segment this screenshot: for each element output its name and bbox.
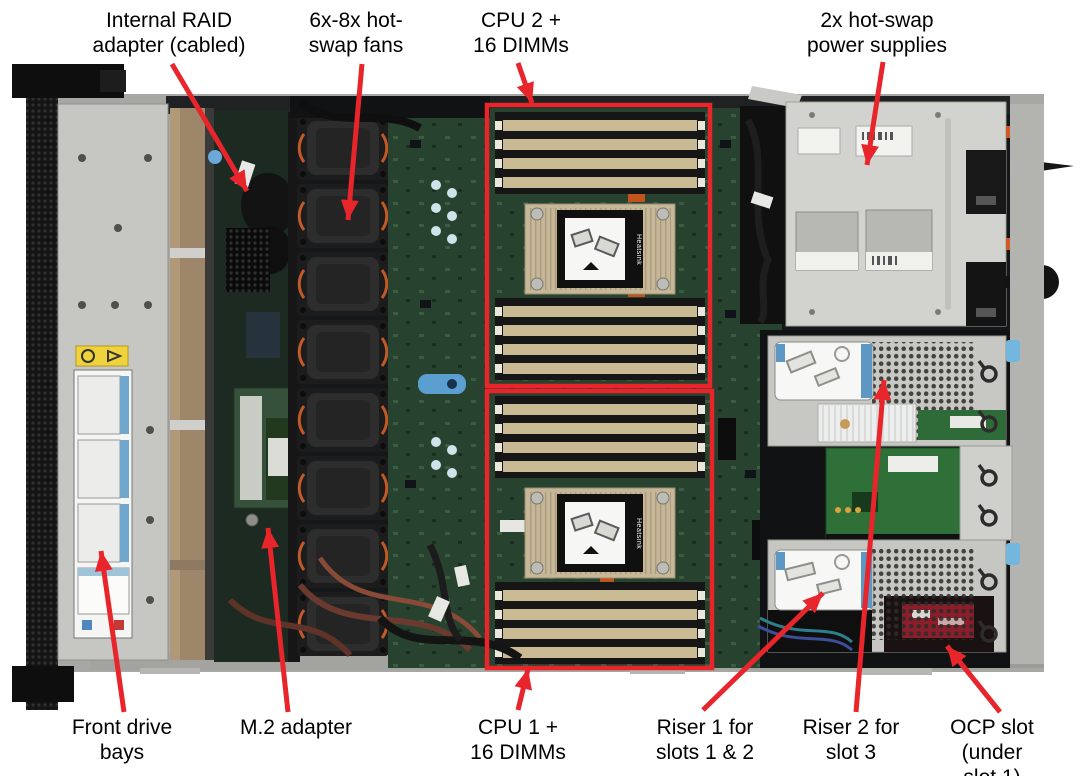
cable-bundle-bottom: [230, 545, 852, 658]
psu-handle: [966, 150, 1006, 214]
fan-module: [297, 456, 389, 520]
psu-cable-bundle: [740, 106, 786, 324]
fan-module: [297, 116, 389, 180]
callout-label-riser1-slots-1-2: Riser 1 for slots 1 & 2: [656, 715, 754, 765]
cpu1-socket-area: [495, 396, 705, 664]
psu-release-tab: [1006, 238, 1024, 250]
annotation-overlay: [0, 0, 1083, 776]
riser-release-tab: [1006, 543, 1020, 565]
callout-label-power-supplies: 2x hot-swap power supplies: [807, 8, 947, 58]
callout-label-internal-raid-adapter: Internal RAID adapter (cabled): [93, 8, 246, 58]
callout-label-front-drive-bays: Front drive bays: [72, 715, 172, 765]
drive-backplane: [170, 108, 214, 660]
fan-module: [297, 252, 389, 316]
chassis: [28, 86, 1044, 675]
bracket-hook: [979, 621, 996, 641]
fan-module: [297, 184, 389, 248]
heatsink-label-cpu1: Heatsink: [628, 498, 642, 570]
riser-release-tab: [1006, 340, 1020, 362]
fan-module: [297, 524, 389, 588]
psu-release-tab: [1006, 126, 1024, 138]
front-bezel: [12, 64, 126, 710]
power-supply-bay: [786, 102, 1074, 326]
psu-handle: [966, 262, 1006, 326]
callout-arrow-riser2-slot-3: [856, 380, 884, 712]
front-drive-bays-area: [58, 104, 168, 660]
callout-arrow-cpu2-16dimms: [518, 63, 532, 103]
internal-raid-adapter-area: [208, 110, 300, 662]
fan-module: [297, 388, 389, 452]
callout-arrow-front-drive-bays: [101, 551, 124, 712]
fan-module: [297, 320, 389, 384]
bracket-hook: [979, 569, 996, 589]
callout-arrow-riser1-slots-1-2: [703, 593, 823, 710]
callout-label-riser2-slot-3: Riser 2 for slot 3: [803, 715, 900, 765]
callout-arrow-internal-raid-adapter: [172, 64, 247, 191]
m2-adapter-area: [234, 388, 296, 526]
pcie-adapter-card: [826, 446, 1012, 544]
highlight-box-cpu2: [487, 105, 710, 386]
callout-label-ocp-slot: OCP slot (under slot 1): [947, 715, 1038, 776]
callout-label-cpu1-16dimms: CPU 1 + 16 DIMMs: [470, 715, 566, 765]
ocp-board: [902, 604, 974, 638]
annotated-server-diagram: Heatsink Heatsink Internal RAID adapter …: [0, 0, 1083, 776]
callout-arrow-ocp-slot: [947, 646, 1000, 712]
callout-arrow-power-supplies: [867, 62, 883, 165]
motherboard: [290, 96, 782, 668]
heatsink-label-cpu2: Heatsink: [628, 214, 642, 286]
callout-label-hot-swap-fans: 6x-8x hot- swap fans: [309, 8, 404, 58]
right-chassis-rail: [1010, 104, 1044, 664]
bracket-hook: [979, 411, 996, 431]
fan-module: [297, 592, 389, 656]
fan-bank: [288, 112, 403, 662]
blue-touch-point: [418, 374, 466, 394]
bracket-hook: [979, 505, 996, 525]
callout-arrow-cpu1-16dimms: [518, 669, 528, 710]
bracket-hook: [979, 361, 996, 381]
server-photo: [0, 0, 1083, 776]
riser2-cage: [768, 336, 1006, 446]
callout-label-cpu2-16dimms: CPU 2 + 16 DIMMs: [473, 8, 569, 58]
bracket-hook: [979, 465, 996, 485]
highlight-box-cpu1: [487, 391, 712, 668]
cpu2-socket-area: [495, 112, 705, 380]
callout-arrow-hot-swap-fans: [348, 64, 362, 220]
callout-label-m2-adapter: M.2 adapter: [240, 715, 352, 740]
callout-arrow-m2-adapter: [268, 528, 288, 712]
riser1-cage: [768, 540, 1006, 652]
riser-region: [760, 330, 1020, 668]
